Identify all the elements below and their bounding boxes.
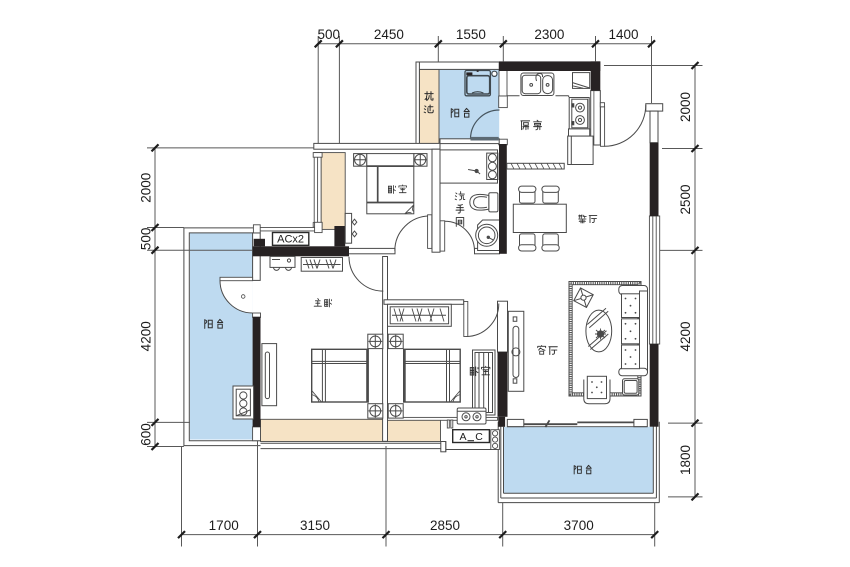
svg-text:C: C xyxy=(475,431,483,443)
svg-text:500: 500 xyxy=(318,27,341,42)
svg-text:2450: 2450 xyxy=(374,27,404,42)
svg-text:2000: 2000 xyxy=(678,92,693,122)
svg-text:1550: 1550 xyxy=(456,27,486,42)
svg-text:500: 500 xyxy=(139,228,154,251)
svg-text:2300: 2300 xyxy=(534,27,564,42)
svg-text:1400: 1400 xyxy=(608,27,638,42)
svg-text:4200: 4200 xyxy=(678,321,693,351)
svg-text:ACx2: ACx2 xyxy=(277,234,304,246)
svg-text:2850: 2850 xyxy=(430,518,460,533)
svg-text:3700: 3700 xyxy=(564,518,594,533)
svg-text:3150: 3150 xyxy=(300,518,330,533)
svg-text:2000: 2000 xyxy=(139,173,154,203)
svg-text:600: 600 xyxy=(139,423,154,446)
svg-text:2500: 2500 xyxy=(678,184,693,214)
svg-text:A: A xyxy=(459,431,466,443)
svg-text:4200: 4200 xyxy=(139,321,154,351)
svg-text:1800: 1800 xyxy=(678,445,693,475)
svg-text:1700: 1700 xyxy=(209,518,239,533)
